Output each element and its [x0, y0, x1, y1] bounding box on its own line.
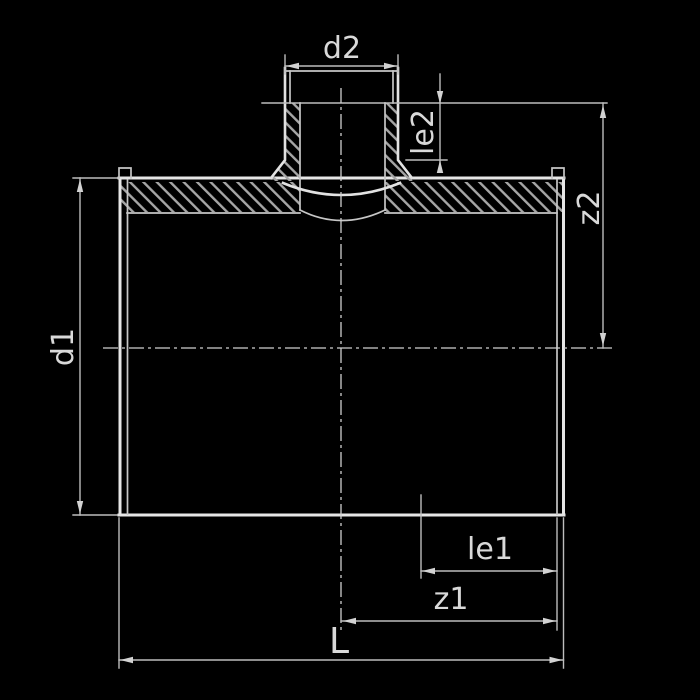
le2-label: le2	[406, 109, 441, 155]
hatch-band-right	[385, 182, 564, 212]
technical-drawing-canvas: d2 le2 z2 d1 le1 z1	[0, 0, 700, 700]
d1-label: d1	[46, 328, 81, 366]
pipe-fitting-section-drawing: d2 le2 z2 d1 le1 z1	[0, 0, 700, 700]
drawing-background	[0, 0, 700, 700]
L-label: L	[329, 621, 349, 662]
le1-label: le1	[467, 532, 513, 567]
z1-label: z1	[434, 582, 469, 617]
d2-label: d2	[323, 31, 361, 66]
hatch-band-left	[121, 182, 300, 212]
z2-label: z2	[572, 191, 607, 226]
